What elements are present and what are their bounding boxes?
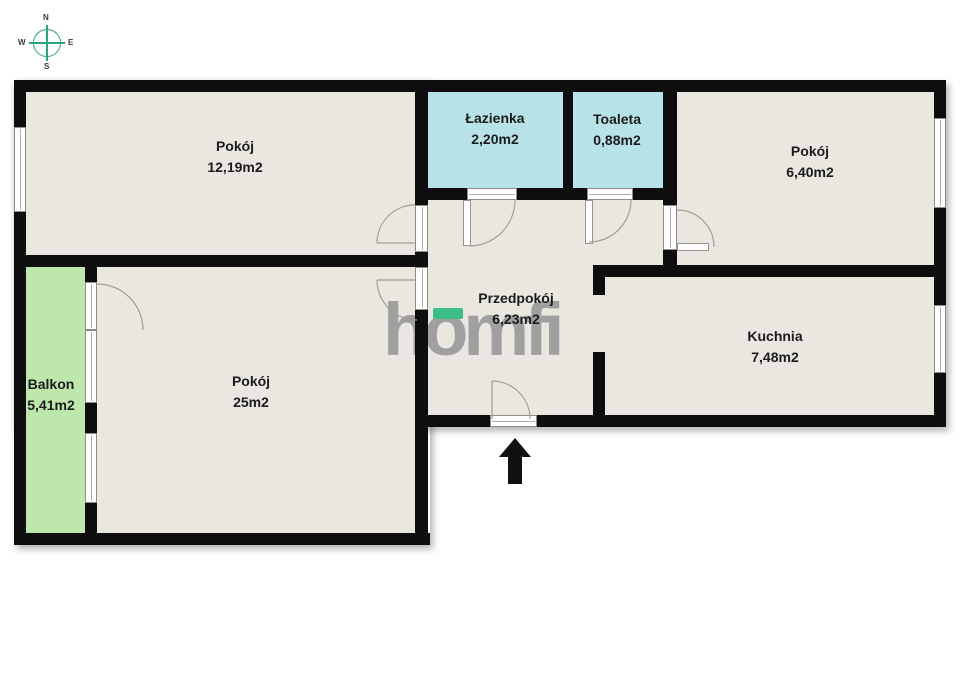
compass-south-label: S xyxy=(44,62,49,71)
compass-circle xyxy=(33,29,61,57)
door-opening-bathroom xyxy=(467,188,517,200)
wall-hall-left-upper xyxy=(415,80,428,205)
compass-east-label: E xyxy=(68,38,73,47)
room-label-toaleta: Toaleta 0,88m2 xyxy=(593,109,641,151)
window-balcony-upper xyxy=(85,330,97,403)
wall-balcony-divider xyxy=(85,503,97,533)
room-label-pokoj-6: Pokój 6,40m2 xyxy=(786,141,833,183)
wall-toilet-right-upper xyxy=(663,80,677,205)
room-name: Balkon xyxy=(27,374,74,395)
room-name: Pokój xyxy=(207,136,262,157)
window-room12-left xyxy=(14,127,26,212)
entrance-arrow-icon xyxy=(499,438,531,484)
door-opening-toilet xyxy=(587,188,633,200)
floorplan-canvas: N E S W homfi xyxy=(0,0,960,679)
wall-kitchen-left-upper xyxy=(593,277,605,295)
room-area: 6,23m2 xyxy=(478,309,553,330)
room-name: Pokój xyxy=(786,141,833,162)
wall-outer-bottom-left xyxy=(14,533,430,545)
entrance-arrow-head xyxy=(499,438,531,457)
door-leaf-room6 xyxy=(677,243,709,251)
room-name: Toaleta xyxy=(593,109,641,130)
room-area: 5,41m2 xyxy=(27,395,74,416)
door-opening-room12 xyxy=(415,205,428,252)
room-area: 7,48m2 xyxy=(747,347,802,368)
wall-bath-toilet-divider xyxy=(563,80,573,200)
room-area: 6,40m2 xyxy=(786,162,833,183)
room-area: 2,20m2 xyxy=(465,129,524,150)
room-name: Przedpokój xyxy=(478,288,553,309)
wall-room12-bottom xyxy=(14,255,428,267)
room-label-pokoj-12: Pokój 12,19m2 xyxy=(207,136,262,178)
compass-rose: N E S W xyxy=(0,0,95,80)
room-label-kuchnia: Kuchnia 7,48m2 xyxy=(747,326,802,368)
window-balcony-lower xyxy=(85,433,97,503)
wall-balcony-divider xyxy=(85,267,97,282)
room-label-balkon: Balkon 5,41m2 xyxy=(27,374,74,416)
wall-hall-left-lower xyxy=(415,310,428,545)
room-area: 25m2 xyxy=(232,392,270,413)
door-leaf-bathroom xyxy=(463,200,471,246)
room-area: 12,19m2 xyxy=(207,157,262,178)
room-label-pokoj-25: Pokój 25m2 xyxy=(232,371,270,413)
entrance-arrow-stem xyxy=(508,456,522,484)
room-name: Pokój xyxy=(232,371,270,392)
compass-north-label: N xyxy=(43,13,49,22)
wall-kitchen-top xyxy=(593,265,934,277)
wall-outer-bottom-right xyxy=(537,415,946,427)
window-room6-right xyxy=(934,118,946,208)
wall-outer-top xyxy=(14,80,946,92)
compass-west-label: W xyxy=(18,38,26,47)
door-leaf-toilet xyxy=(585,200,593,244)
wall-toilet-bottom xyxy=(633,188,677,200)
wall-bath-bottom xyxy=(415,188,467,200)
room-area: 0,88m2 xyxy=(593,130,641,151)
room-label-przedpokoj: Przedpokój 6,23m2 xyxy=(478,288,553,330)
wall-bath-bottom xyxy=(517,188,587,200)
door-opening-entrance xyxy=(490,415,537,427)
homfi-logo-accent-bar xyxy=(433,308,463,319)
door-opening-room25 xyxy=(415,267,428,310)
wall-balcony-divider xyxy=(85,403,97,433)
room-name: Łazienka xyxy=(465,108,524,129)
room-name: Kuchnia xyxy=(747,326,802,347)
wall-kitchen-left-lower xyxy=(593,352,605,415)
window-kitchen-right xyxy=(934,305,946,373)
room-label-lazienka: Łazienka 2,20m2 xyxy=(465,108,524,150)
door-opening-room6 xyxy=(663,205,677,250)
door-opening-balcony xyxy=(85,282,97,330)
